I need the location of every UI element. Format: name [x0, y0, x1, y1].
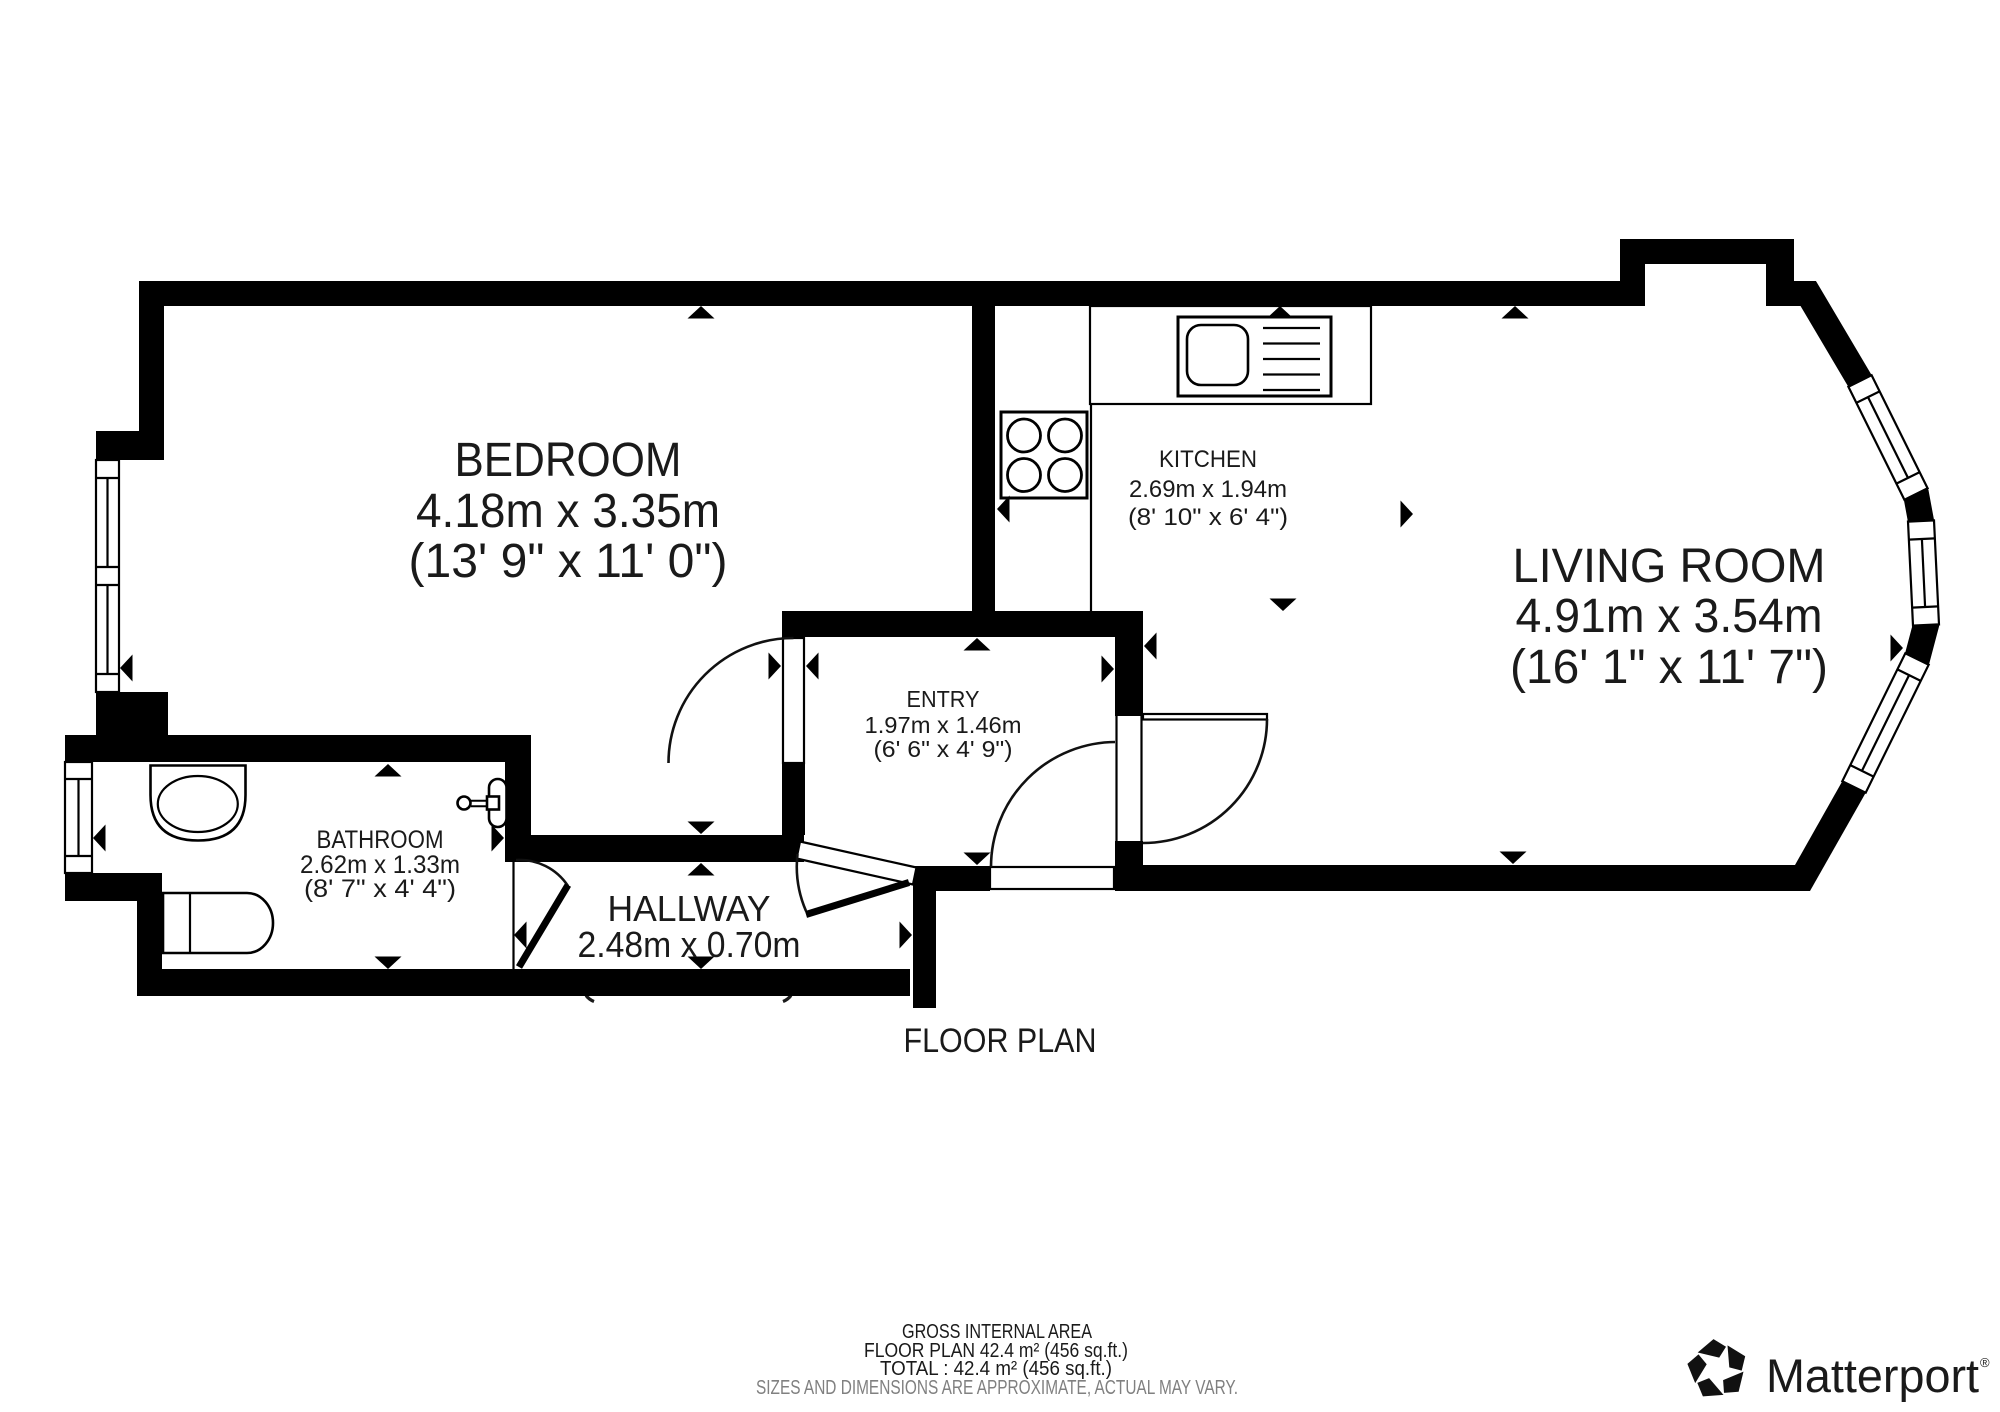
svg-text:(8' 7" x 4' 4"): (8' 7" x 4' 4") [304, 875, 456, 903]
svg-text:(16' 1" x 11' 7"): (16' 1" x 11' 7") [1510, 641, 1828, 694]
svg-text:(8' 10" x 6' 4"): (8' 10" x 6' 4") [1128, 504, 1288, 531]
svg-text:BATHROOM: BATHROOM [317, 826, 444, 854]
svg-text:2.48m x 0.70m: 2.48m x 0.70m [578, 924, 801, 965]
svg-text:1.97m x 1.46m: 1.97m x 1.46m [865, 712, 1022, 738]
svg-text:BEDROOM: BEDROOM [455, 434, 682, 487]
svg-text:(13' 9" x 11' 0"): (13' 9" x 11' 0") [409, 535, 728, 588]
svg-text:KITCHEN: KITCHEN [1159, 446, 1257, 473]
svg-text:LIVING ROOM: LIVING ROOM [1513, 540, 1826, 593]
svg-text:HALLWAY: HALLWAY [608, 888, 771, 929]
svg-text:4.18m x 3.35m: 4.18m x 3.35m [416, 485, 720, 538]
svg-text:(6' 6" x 4' 9"): (6' 6" x 4' 9") [874, 736, 1013, 762]
svg-text:4.91m x 3.54m: 4.91m x 3.54m [1516, 590, 1823, 643]
svg-text:®: ® [1980, 1355, 1990, 1370]
svg-text:Matterport: Matterport [1766, 1349, 1979, 1402]
svg-text:ENTRY: ENTRY [907, 686, 980, 712]
svg-text:FLOOR PLAN: FLOOR PLAN [904, 1022, 1097, 1060]
svg-text:SIZES AND DIMENSIONS ARE APPRO: SIZES AND DIMENSIONS ARE APPROXIMATE, AC… [756, 1377, 1238, 1399]
svg-text:2.69m x 1.94m: 2.69m x 1.94m [1129, 476, 1287, 503]
